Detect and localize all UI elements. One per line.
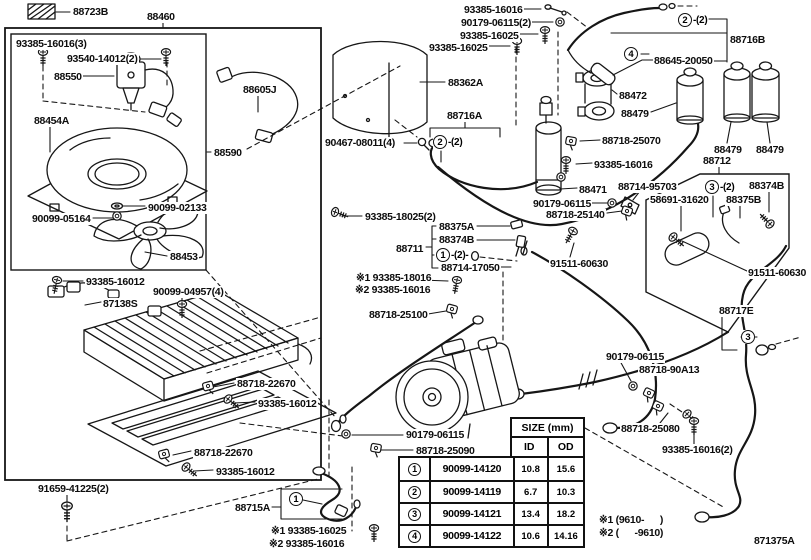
part-label-1-93385-16025: ※1 93385-16025 <box>270 525 347 537</box>
part-label-93385-16025: 93385-16025 <box>428 42 489 54</box>
circled-number: 4 <box>408 530 421 543</box>
circled-number: 3 <box>705 180 719 194</box>
size-table-body: 190099-1412010.815.6290099-141196.710.33… <box>398 456 585 548</box>
part-label-88718-25100: 88718-25100 <box>368 309 429 321</box>
circled-number: 3 <box>408 508 421 521</box>
row-part-number: 90099-14120 <box>429 458 512 480</box>
part-label-2-93385-16016: ※2 93385-16016 <box>354 284 431 296</box>
row-id-value: 13.4 <box>513 504 547 524</box>
size-table-row: 390099-1412113.418.2 <box>400 502 583 524</box>
row-index: 1 <box>400 458 429 480</box>
part-label-93385-16012: 93385-16012 <box>257 398 318 410</box>
row-od-value: 15.6 <box>547 458 583 480</box>
size-table-title: SIZE (mm) <box>510 417 585 438</box>
part-label-88723b: 88723B <box>72 6 109 18</box>
part-label-88374b: 88374B <box>748 180 785 192</box>
part-label-88454a: 88454A <box>33 115 70 127</box>
marker-quantity-suffix: -(2) <box>692 15 707 26</box>
circled-number: 1 <box>408 463 421 476</box>
circled-number: 4 <box>624 47 638 61</box>
part-label-58691-31620: 58691-31620 <box>649 194 710 206</box>
row-part-number: 90099-14122 <box>429 526 512 546</box>
marker-quantity-suffix: -(2)- <box>450 250 468 261</box>
blower-case-art <box>333 42 427 142</box>
part-label-91511-60630: 91511-60630 <box>747 267 807 279</box>
circled-number: 2 <box>678 13 692 27</box>
row-od-value: 10.3 <box>547 482 583 502</box>
part-label-88718-25080: 88718-25080 <box>620 423 681 435</box>
part-label-88375a: 88375A <box>438 221 475 233</box>
size-table-row: 190099-1412010.815.6 <box>400 458 583 480</box>
part-label-91659-41225-2: 91659-41225(2) <box>37 483 110 495</box>
row-id-value: 10.8 <box>513 458 547 480</box>
marker-quantity-suffix: -(2) <box>719 182 734 193</box>
part-label-88375b: 88375B <box>725 194 762 206</box>
part-label-93385-16016: 93385-16016 <box>463 4 524 16</box>
part-label-88460: 88460 <box>146 11 176 23</box>
part-label-88374b: 88374B <box>438 234 475 246</box>
row-index: 3 <box>400 504 429 524</box>
part-label-88714-17050: 88714-17050 <box>440 262 501 274</box>
part-label-90467-08011-4: 90467-08011(4) <box>324 137 396 149</box>
part-label-93385-18025-2: 93385-18025(2) <box>364 211 437 223</box>
part-label-88717e: 88717E <box>718 305 754 317</box>
circled-number: 1 <box>436 248 450 262</box>
liquid-hose-art <box>313 467 360 521</box>
part-label-90179-06115: 90179-06115 <box>605 351 665 363</box>
part-label-90179-06115-2: 90179-06115(2) <box>460 17 532 29</box>
part-label-93540-14012-2: 93540-14012(2) <box>66 53 139 65</box>
part-label-93385-16012: 93385-16012 <box>215 466 276 478</box>
wire-harness-88605j <box>227 72 298 136</box>
part-label-87138s: 87138S <box>102 298 138 310</box>
part-label-88714-95703: 88714-95703 <box>617 181 678 193</box>
part-label-90099-04957-4: 90099-04957(4) <box>152 286 225 298</box>
circled-marker-2: 2-(2) <box>433 135 462 149</box>
part-label-88716b: 88716B <box>729 34 766 46</box>
part-label-91511-60630: 91511-60630 <box>549 258 609 270</box>
circled-number: 2 <box>408 486 421 499</box>
row-od-value: 18.2 <box>547 504 583 524</box>
part-label-88471: 88471 <box>578 184 608 196</box>
row-part-number: 90099-14119 <box>429 482 512 502</box>
part-label-88716a: 88716A <box>446 110 483 122</box>
part-label-88550: 88550 <box>53 71 83 83</box>
parts-diagram-page: 88723B8846093385-16016(3)93540-14012(2)8… <box>0 0 811 560</box>
part-label-93385-16012: 93385-16012 <box>85 276 146 288</box>
size-table-col-id: ID <box>512 438 547 456</box>
part-label-93385-16016: 93385-16016 <box>593 159 654 171</box>
row-part-number: 90099-14121 <box>429 504 512 524</box>
row-id-value: 10.6 <box>513 526 547 546</box>
part-label-2-9610: ※2 ( -9610) <box>598 527 664 539</box>
size-table-row: 290099-141196.710.3 <box>400 480 583 502</box>
circled-marker-2: 2-(2) <box>678 13 707 27</box>
row-od-value: 14.16 <box>547 526 583 546</box>
row-index: 4 <box>400 526 429 546</box>
part-label-871375a: 871375A <box>753 535 796 547</box>
circled-marker-1: 1 <box>289 492 303 506</box>
part-label-88590: 88590 <box>213 147 243 159</box>
part-label-88453: 88453 <box>169 251 199 263</box>
part-label-88718-25070: 88718-25070 <box>601 135 662 147</box>
size-table-col-od: OD <box>547 438 584 456</box>
part-label-88479: 88479 <box>755 144 785 156</box>
part-label-88715a: 88715A <box>234 502 271 514</box>
circled-marker-1: 1-(2)- <box>436 248 468 262</box>
part-label-90099-02133: 90099-02133 <box>147 202 208 214</box>
part-label-88479: 88479 <box>620 108 650 120</box>
part-label-88712: 88712 <box>702 155 732 167</box>
size-table-row: 490099-1412210.614.16 <box>400 524 583 546</box>
part-label-88605j: 88605J <box>242 84 277 96</box>
marker-quantity-suffix: -(2) <box>447 137 462 148</box>
part-label-93385-16016-2: 93385-16016(2) <box>661 444 734 456</box>
circled-number: 3 <box>741 330 755 344</box>
part-label-93385-16025: 93385-16025 <box>459 30 520 42</box>
part-label-93385-16016-3: 93385-16016(3) <box>15 38 88 50</box>
part-label-1-9610: ※1 (9610- ) <box>598 514 664 526</box>
part-label-88718-25140: 88718-25140 <box>545 209 606 221</box>
row-index: 2 <box>400 482 429 502</box>
small-fittings-art <box>112 5 567 261</box>
part-label-1-93385-18016: ※1 93385-18016 <box>355 272 432 284</box>
part-label-88718-22670: 88718-22670 <box>236 378 297 390</box>
part-label-88711: 88711 <box>395 243 424 255</box>
circled-number: 1 <box>289 492 303 506</box>
circled-marker-3: 3-(2) <box>705 180 734 194</box>
evaporator-core-art <box>48 282 336 466</box>
condenser-canisters-art <box>677 62 779 124</box>
part-label-88362a: 88362A <box>447 77 484 89</box>
part-label-88718-22670: 88718-22670 <box>193 447 254 459</box>
circled-marker-3: 3 <box>741 330 755 344</box>
part-label-88718-90a13: 88718-90A13 <box>638 364 700 376</box>
part-label-90099-05164: 90099-05164 <box>31 213 92 225</box>
part-label-88645-20050: 88645-20050 <box>653 55 714 67</box>
circled-number: 2 <box>433 135 447 149</box>
size-table: SIZE (mm) ID OD 190099-1412010.815.62900… <box>398 417 585 547</box>
row-id-value: 6.7 <box>513 482 547 502</box>
circled-marker-4: 4 <box>624 47 638 61</box>
part-label-88472: 88472 <box>618 90 648 102</box>
part-label-2-93385-16016: ※2 93385-16016 <box>268 538 345 550</box>
size-table-subhead: ID OD <box>510 436 585 458</box>
